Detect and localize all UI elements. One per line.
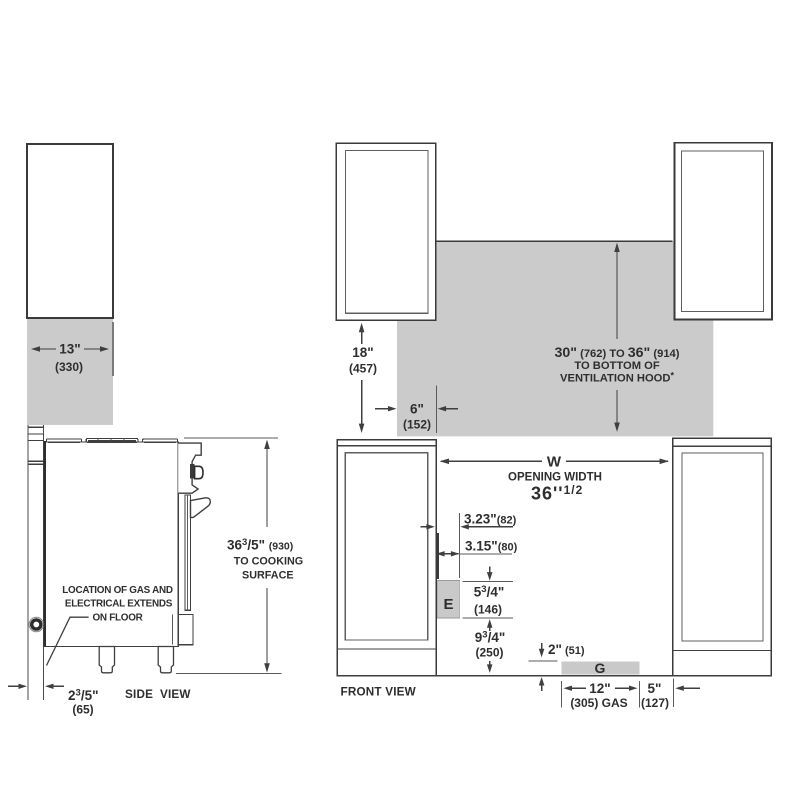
svg-text:30" (762) TO 36" (914): 30" (762) TO 36" (914) <box>554 345 679 361</box>
svg-text:(65): (65) <box>72 703 93 717</box>
svg-text:TO BOTTOM OF: TO BOTTOM OF <box>574 360 660 372</box>
svg-text:5": 5" <box>648 681 662 696</box>
svg-text:93/4": 93/4" <box>475 630 505 646</box>
svg-text:SURFACE: SURFACE <box>242 570 294 582</box>
svg-text:(127): (127) <box>641 696 669 710</box>
svg-text:FRONT VIEW: FRONT VIEW <box>341 686 417 699</box>
svg-text:OPENING WIDTH: OPENING WIDTH <box>508 472 602 484</box>
svg-text:2" (51): 2" (51) <box>548 642 585 657</box>
svg-text:G: G <box>595 660 606 676</box>
svg-text:53/4": 53/4" <box>474 584 504 600</box>
svg-text:6": 6" <box>410 402 424 417</box>
svg-text:23/5": 23/5" <box>68 688 98 704</box>
svg-text:VENTILATION HOOD*: VENTILATION HOOD* <box>560 370 674 384</box>
svg-text:(146): (146) <box>474 603 502 617</box>
svg-text:W: W <box>547 454 562 471</box>
svg-text:(152): (152) <box>403 418 431 432</box>
svg-text:LOCATION OF GAS AND: LOCATION OF GAS AND <box>62 585 173 596</box>
svg-text:3.23"(82): 3.23"(82) <box>464 512 517 527</box>
svg-text:E: E <box>443 596 453 613</box>
svg-text:13": 13" <box>59 342 80 357</box>
svg-text:(250): (250) <box>475 646 503 660</box>
svg-text:(457): (457) <box>349 362 377 376</box>
svg-text:ON FLOOR: ON FLOOR <box>92 613 142 624</box>
svg-text:3.15"(80): 3.15"(80) <box>465 539 518 554</box>
svg-text:SIDE VIEW: SIDE VIEW <box>125 688 191 701</box>
svg-text:TO COOKING: TO COOKING <box>234 556 303 568</box>
svg-text:ELECTRICAL EXTENDS: ELECTRICAL EXTENDS <box>65 599 173 610</box>
svg-text:12": 12" <box>589 681 610 696</box>
svg-text:(330): (330) <box>55 360 83 374</box>
svg-text:18": 18" <box>352 345 373 360</box>
svg-text:(305) GAS: (305) GAS <box>570 696 627 710</box>
